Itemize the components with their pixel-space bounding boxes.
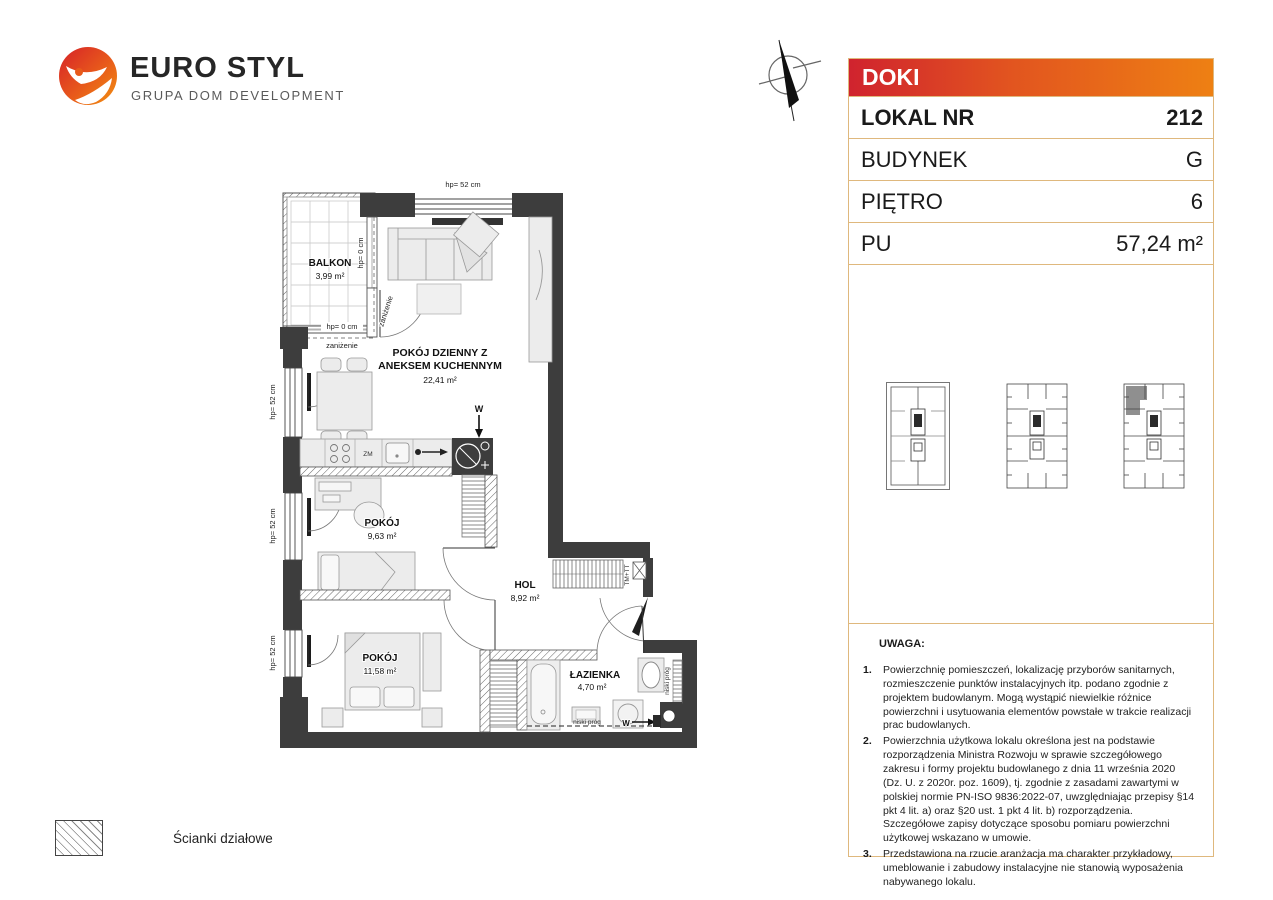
room-area-living: 22,41 m² — [423, 375, 457, 385]
note-item-1: 1. Powierzchnię pomieszczeń, lokalizację… — [863, 664, 1199, 733]
info-label: LOKAL NR — [861, 105, 974, 131]
bathroom: ŁAZIENKA 4,70 m² niski próg niski próg W — [490, 606, 682, 730]
sink — [386, 443, 409, 463]
info-label: PU — [861, 231, 892, 257]
ceiling-drop-label: zaniżenie — [326, 341, 358, 350]
notes-panel: UWAGA: 1. Powierzchnię pomieszczeń, loka… — [849, 623, 1213, 851]
unit-info-panel: DOKI LOKAL NR 212 BUDYNEK G PIĘTRO 6 PU … — [848, 58, 1214, 857]
info-value: G — [1186, 147, 1203, 173]
nightstand-left — [322, 708, 343, 727]
wardrobe-bedroom2 — [423, 633, 441, 691]
rug — [417, 284, 461, 314]
threshold-label-vertical: niski próg — [664, 667, 671, 695]
room-label-pokoj2: POKÓJ — [362, 651, 397, 664]
sill-label-hp0-bottom: hp= 0 cm — [326, 322, 357, 331]
key-plan-2 — [1004, 381, 1070, 491]
partition-bedroom1 — [485, 475, 497, 547]
partition-hatch-swatch — [55, 820, 103, 856]
living-room-window — [415, 199, 512, 214]
door-label-hp0: hp= 0 cm — [356, 237, 365, 268]
window-label-hp52-top: hp= 52 cm — [445, 180, 480, 189]
kitchen-zm-label: ZM — [363, 451, 372, 458]
info-row-pu: PU 57,24 m² — [849, 222, 1213, 264]
wardrobe-tall — [529, 217, 552, 362]
legend-label: Ścianki działowe — [173, 831, 273, 846]
partition-kitchen — [300, 467, 452, 476]
info-label: BUDYNEK — [861, 147, 967, 173]
room-label-living-1: POKÓJ DZIENNY Z — [393, 346, 488, 359]
partition-bathroom-top — [490, 650, 597, 660]
bedroom-1: POKÓJ 9,63 m² — [315, 475, 497, 600]
threshold-label-bottom: niski próg — [573, 719, 601, 726]
brand-name: EURO STYL — [130, 52, 305, 85]
info-value: 212 — [1166, 105, 1203, 131]
key-plan-1 — [885, 381, 951, 491]
bedroom-2: POKÓJ 11,58 m² — [300, 590, 495, 732]
window-label-hp52-3: hp= 52 cm — [268, 635, 277, 670]
partition-bedroom2-top — [300, 590, 450, 600]
room-area-balkon: 3,99 m² — [316, 271, 345, 281]
room-area-hol: 8,92 m² — [511, 593, 540, 603]
info-row-pietro: PIĘTRO 6 — [849, 180, 1213, 222]
key-plan-3-highlighted — [1121, 381, 1187, 491]
info-value: 6 — [1191, 189, 1203, 215]
hall-shelving — [490, 660, 517, 727]
room-label-lazienka: ŁAZIENKA — [570, 670, 621, 681]
brand-tagline: GRUPA DOM DEVELOPMENT — [131, 88, 345, 103]
nightstand-right — [422, 708, 442, 727]
door-bedroom1-arc — [443, 548, 495, 600]
sink-oval — [638, 658, 664, 692]
north-arrow-icon — [745, 28, 835, 128]
shaft-label-tmtt: TM+TT — [624, 564, 631, 585]
building-key-plans — [849, 264, 1213, 623]
vent-shaft — [452, 438, 493, 475]
room-area-pokoj1: 9,63 m² — [368, 531, 397, 541]
room-area-lazienka: 4,70 m² — [578, 682, 607, 692]
door-bedroom2-arc — [444, 600, 495, 651]
note-item-2: 2. Powierzchnia użytkowa lokalu określon… — [863, 735, 1199, 846]
partition-bedroom2-right — [480, 650, 490, 732]
info-row-lokal: LOKAL NR 212 — [849, 96, 1213, 138]
bathtub — [527, 660, 560, 730]
info-label: PIĘTRO — [861, 189, 943, 215]
window-label-hp52-1: hp= 52 cm — [268, 384, 277, 419]
note-item-3: 3. Przedstawiona na rzucie aranżacja ma … — [863, 848, 1199, 890]
vent-label-kitchen: W — [475, 404, 484, 414]
entry-door-leaf — [632, 597, 648, 636]
entry-door — [600, 597, 648, 641]
eurostyl-logo-icon — [55, 42, 123, 110]
partition-bathroom-left — [517, 660, 527, 730]
toilet — [660, 702, 682, 728]
vent-label-bathroom: W — [622, 719, 630, 728]
room-label-balkon: BALKON — [309, 258, 352, 269]
legend: Ścianki działowe — [55, 818, 273, 858]
notes-title: UWAGA: — [879, 638, 1199, 650]
room-area-pokoj2: 11,58 m² — [364, 666, 397, 676]
room-label-pokoj1: POKÓJ — [364, 516, 399, 529]
hall: HOL 8,92 m² TM+TT — [511, 560, 648, 641]
ceiling-drop-label-door: zaniżenie — [376, 295, 394, 328]
info-row-budynek: BUDYNEK G — [849, 138, 1213, 180]
apartment-floor-plan: BALKON 3,99 m² hp= 0 cm zaniżenie — [255, 160, 705, 760]
wardrobe-striped — [462, 475, 485, 537]
info-value: 57,24 m² — [1116, 231, 1203, 257]
room-label-living-2: ANEKSEM KUCHENNYM — [378, 360, 502, 372]
room-label-hol: HOL — [514, 580, 535, 591]
gas-point — [415, 449, 421, 455]
brand-logo: EURO STYL GRUPA DOM DEVELOPMENT — [55, 42, 375, 122]
project-name: DOKI — [849, 59, 1213, 96]
floor-plan-sheet: EURO STYL GRUPA DOM DEVELOPMENT DOKI LOK… — [0, 0, 1273, 900]
window-label-hp52-2: hp= 52 cm — [268, 508, 277, 543]
dining-set — [317, 358, 372, 444]
